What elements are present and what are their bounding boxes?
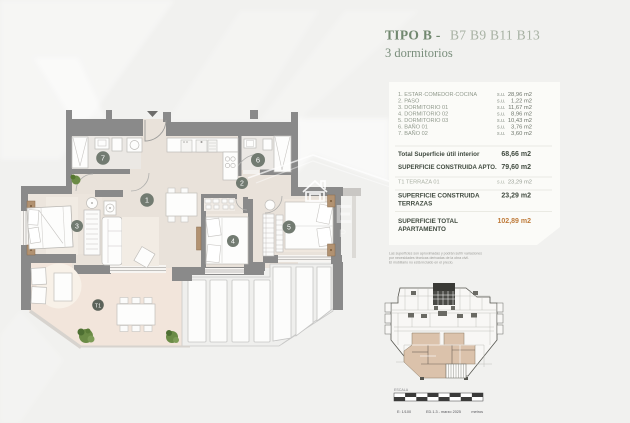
svg-text:2: 2 (240, 181, 244, 188)
svg-text:1,22 m2: 1,22 m2 (511, 99, 532, 105)
svg-text:APARTAMENTO: APARTAMENTO (398, 226, 446, 233)
svg-text:3,60 m2: 3,60 m2 (511, 131, 532, 137)
svg-text:metros: metros (471, 410, 483, 414)
svg-text:23,29 m2: 23,29 m2 (508, 180, 532, 186)
svg-text:4. DORMITORIO 02: 4. DORMITORIO 02 (398, 112, 448, 118)
svg-text:TIPO B - B7 B9 B11 B13: TIPO B - B7 B9 B11 B13 (385, 28, 540, 43)
svg-text:Total Superficie útil interior: Total Superficie útil interior (398, 151, 480, 158)
svg-text:5: 5 (287, 225, 291, 232)
svg-text:Las superficies son aproximada: Las superficies son aproximadas y podrán… (389, 252, 482, 256)
svg-text:SUPERFICIE CONSTRUIDA APTO.: SUPERFICIE CONSTRUIDA APTO. (398, 164, 497, 171)
svg-text:6: 6 (256, 156, 260, 165)
svg-text:1: 1 (145, 196, 149, 205)
svg-text:TERRAZAS: TERRAZAS (398, 201, 432, 208)
svg-text:s.u.: s.u. (497, 92, 505, 98)
svg-text:5. DORMITORIO 03: 5. DORMITORIO 03 (398, 118, 448, 124)
svg-text:68,66 m2: 68,66 m2 (501, 151, 531, 158)
svg-text:E: 1/100: E: 1/100 (397, 410, 411, 414)
svg-text:79,60 m2: 79,60 m2 (501, 164, 531, 171)
svg-text:P: P (339, 228, 346, 240)
svg-text:ESCALA: ESCALA (394, 388, 409, 392)
svg-text:3,76 m2: 3,76 m2 (511, 125, 532, 131)
svg-text:10,43 m2: 10,43 m2 (508, 118, 532, 124)
svg-text:El mobiliario no está incluido: El mobiliario no está incluido en el pre… (389, 261, 453, 265)
svg-text:s.u.: s.u. (497, 99, 505, 105)
svg-text:ED.1.3 - marzo 2025: ED.1.3 - marzo 2025 (426, 410, 461, 414)
svg-text:3 dormitorios: 3 dormitorios (385, 46, 453, 60)
svg-text:E: E (335, 199, 352, 229)
svg-text:2. PASO: 2. PASO (398, 99, 420, 105)
svg-text:11,67 m2: 11,67 m2 (508, 105, 532, 111)
svg-text:s.u.: s.u. (497, 118, 505, 124)
svg-text:7. BAÑO 02: 7. BAÑO 02 (398, 130, 428, 137)
svg-text:8,96 m2: 8,96 m2 (511, 112, 532, 118)
svg-text:28,96 m2: 28,96 m2 (508, 92, 532, 98)
svg-text:1. ESTAR·COMEDOR·COCINA: 1. ESTAR·COMEDOR·COCINA (398, 92, 477, 98)
svg-text:4: 4 (231, 239, 235, 246)
svg-text:s.u.: s.u. (497, 112, 505, 118)
svg-text:por necesidades técnicas deriv: por necesidades técnicas derivadas de la… (389, 256, 469, 260)
svg-text:3: 3 (75, 224, 79, 231)
svg-text:T1 TERRAZA 01: T1 TERRAZA 01 (398, 180, 440, 186)
svg-text:102,89 m2: 102,89 m2 (498, 218, 532, 225)
svg-text:23,29 m2: 23,29 m2 (501, 193, 531, 200)
svg-text:SUPERFICIE TOTAL: SUPERFICIE TOTAL (398, 218, 458, 225)
svg-text:s.u.: s.u. (497, 180, 505, 186)
svg-text:s.u.: s.u. (497, 131, 505, 137)
svg-text:6. BAÑO 01: 6. BAÑO 01 (398, 124, 428, 131)
svg-text:s.u.: s.u. (497, 105, 505, 111)
svg-text:3. DORMITORIO 01: 3. DORMITORIO 01 (398, 105, 448, 111)
svg-text:7: 7 (101, 154, 105, 163)
svg-text:SUPERFICIE CONSTRUIDA: SUPERFICIE CONSTRUIDA (398, 193, 480, 200)
svg-text:s.u.: s.u. (497, 125, 505, 131)
svg-text:T1: T1 (95, 303, 101, 309)
